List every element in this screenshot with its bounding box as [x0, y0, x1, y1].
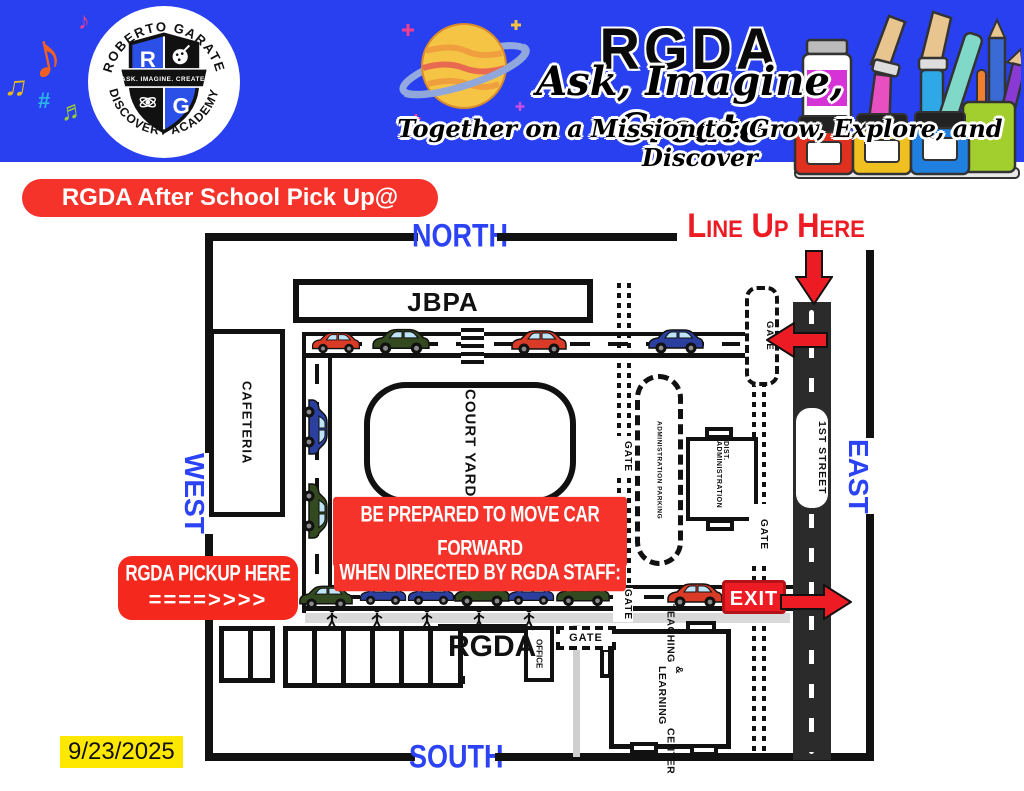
tagline-secondary: Together on a Mission to: Grow, Explore,… — [380, 114, 1020, 172]
compass-north: NORTH — [412, 218, 502, 255]
street-name-label: 1ST STREET — [796, 408, 828, 508]
arrow-down-icon — [795, 250, 833, 306]
car-icon — [303, 397, 329, 457]
logo-letter-r: R — [140, 47, 156, 72]
building-door — [690, 744, 718, 756]
map-border-right-upper — [866, 250, 874, 438]
car-icon — [303, 481, 329, 541]
car-icon — [664, 582, 726, 608]
car-icon — [370, 327, 432, 355]
arrow-right-icon — [780, 584, 852, 620]
warning-sign: BE PREPARED TO MOVE CAR FORWARD WHEN DIR… — [333, 505, 627, 587]
building-door — [600, 648, 612, 678]
pedestrian-icon — [520, 606, 538, 632]
building-teaching-learning-center: TEACHING & LEARNING CENTER — [609, 629, 731, 749]
pedestrian-icon — [368, 606, 386, 632]
building-door — [706, 519, 734, 531]
fence-middle — [627, 478, 631, 586]
building-door — [630, 742, 658, 754]
compass-east: EAST — [842, 436, 874, 516]
parking-stalls — [283, 626, 463, 688]
event-banner: RGDA After School Pick Up@ 3:30pm — [22, 179, 438, 217]
parking-stalls — [219, 626, 275, 683]
building-dist-administration: DIST. ADMINISTRATION — [686, 437, 758, 521]
street-centerline — [809, 310, 814, 754]
fence-middle — [627, 283, 631, 436]
west-road-edge — [328, 357, 332, 587]
gate-label-middle: GATE — [613, 436, 633, 478]
pickup-arrows: ====>>>> — [118, 587, 298, 613]
gate-label-office: GATE — [556, 626, 616, 650]
building-door — [705, 427, 733, 439]
building-door — [686, 621, 716, 633]
fence-middle — [617, 283, 621, 436]
west-road-edge — [302, 332, 306, 613]
gate-label-exit-road: GATE — [613, 588, 633, 622]
building-cafeteria: CAFETERIA — [209, 329, 285, 517]
warning-line2: WHEN DIRECTED BY RGDA STAFF: — [334, 555, 625, 591]
admin-parking-lot: ADMINISTRATION PARKING — [635, 374, 683, 566]
pedestrian-icon — [418, 606, 436, 632]
school-logo: ROBERTO GARATE DISCOVERY ACADEMY R G — [88, 6, 240, 158]
compass-west: WEST — [178, 451, 210, 535]
teaching-label: CENTER — [662, 728, 679, 774]
pickup-line1: RGDA PICKUP HERE — [118, 561, 298, 587]
map-border-right-lower — [866, 514, 874, 761]
car-icon — [508, 329, 570, 355]
flyer-canvas: ♪ ♫ ♬ ♪ # ROBERTO GARATE DISCOVERY ACADE… — [0, 0, 1024, 791]
map-border-top-right — [497, 233, 677, 241]
compass-south: SOUTH — [409, 739, 501, 776]
map-border-top-left — [205, 233, 418, 241]
car-icon — [310, 331, 362, 354]
arrow-left-icon — [766, 322, 828, 358]
date-label: 9/23/2025 — [60, 736, 183, 768]
logo-letter-g: G — [173, 93, 190, 118]
logo-motto: ASK. IMAGINE. CREATE. — [121, 76, 207, 83]
teaching-label: & LEARNING — [653, 666, 687, 725]
line-up-here-label: Line Up Here — [668, 206, 884, 246]
teaching-label: TEACHING — [662, 604, 679, 663]
pedestrian-icon — [323, 606, 341, 632]
fence-east — [762, 382, 766, 504]
map-border-bottom-left — [205, 753, 415, 761]
building-rgda: RGDA — [448, 630, 532, 664]
building-jbpa: JBPA — [293, 279, 593, 323]
gate-label-east: GATE — [749, 504, 769, 566]
car-icon — [646, 327, 706, 355]
crosswalk — [461, 328, 484, 366]
pedestrian-icon — [470, 606, 488, 632]
building-courtyard: COURT YARD — [364, 382, 576, 504]
pickup-here-sign: RGDA PICKUP HERE ====>>>> — [118, 556, 298, 620]
exit-sign: EXIT — [722, 580, 786, 614]
